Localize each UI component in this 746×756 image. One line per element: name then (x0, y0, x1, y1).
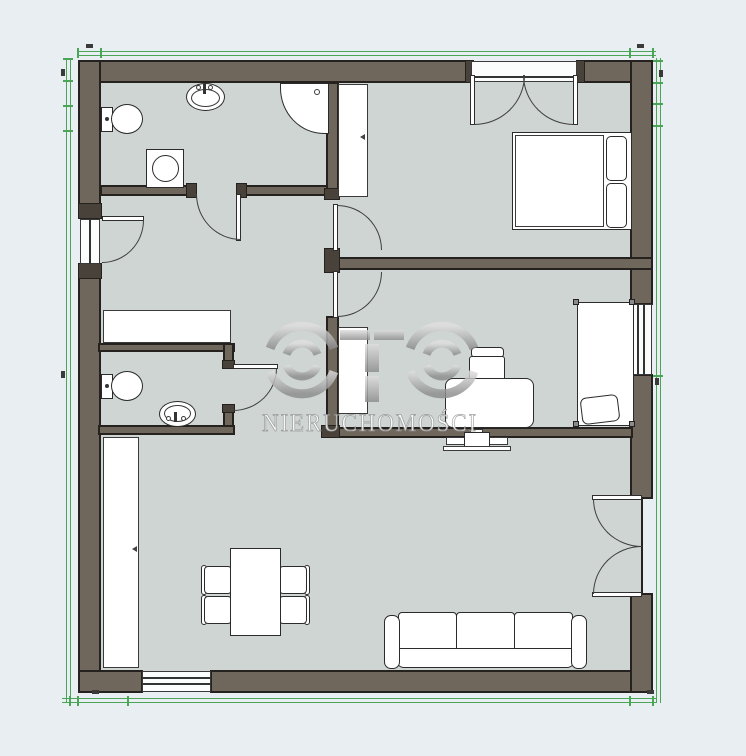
tap-handle (181, 416, 186, 421)
dimension-line-top (78, 51, 656, 56)
dining-chair (279, 596, 307, 624)
window-right (631, 304, 652, 375)
tap-handle (196, 85, 201, 90)
bedroom-wardrobe (338, 84, 368, 197)
bed-post (573, 421, 579, 427)
wall-wc-top (98, 343, 235, 352)
dimension-label-mark (655, 378, 659, 385)
pillow (606, 136, 627, 181)
wall-cap (324, 248, 340, 273)
wall-cap (321, 425, 340, 438)
dimension-tick (63, 105, 73, 107)
dimension-tick (629, 48, 631, 58)
wall-cap (78, 203, 102, 219)
dimension-tick (77, 48, 79, 58)
wall-exterior-bottom-left (78, 670, 143, 693)
wall-bedroom-bottom (326, 257, 653, 270)
window-glazing-line (142, 677, 211, 679)
wall-exterior-left-lower (78, 264, 101, 693)
sofa-backrest (396, 648, 575, 668)
toilet-flush-dot (105, 117, 109, 121)
dimension-tick (63, 130, 73, 132)
bed-post (629, 299, 635, 305)
bed-post (573, 299, 579, 305)
wall-cap (78, 263, 102, 279)
dimension-label-mark (86, 44, 93, 48)
wall-exterior-left-upper (78, 60, 101, 219)
dimension-label-mark (637, 44, 644, 48)
toilet-bowl (111, 104, 143, 134)
wardrobe-arrow (132, 546, 137, 552)
wall-bathroom-bottom-right (237, 185, 330, 196)
dimension-tick (77, 696, 79, 706)
dining-table (230, 548, 281, 636)
entrance-frame-line (89, 219, 91, 264)
dimension-label-mark (61, 371, 65, 378)
window-glazing-line (142, 683, 211, 685)
bed-post (629, 421, 635, 427)
window-bottom (142, 671, 211, 692)
dimension-tick (653, 375, 663, 377)
dimension-label-mark (92, 690, 99, 694)
faucet (203, 84, 206, 94)
dimension-tick (653, 103, 663, 105)
dimension-tick (63, 58, 73, 60)
sofa-armrest (384, 615, 400, 669)
sofa-armrest (571, 615, 587, 669)
single-bed-pillow (579, 394, 620, 425)
dimension-tick (653, 125, 663, 127)
floor-plan-canvas: NIERUCHOMOŚCI (0, 0, 746, 756)
toilet-bowl (111, 371, 143, 401)
ceiling-fan-plate (443, 446, 511, 451)
wall-exterior-top-left (78, 60, 472, 83)
toilet-flush-dot (105, 384, 109, 388)
dining-chair (204, 566, 232, 594)
dining-chair (279, 566, 307, 594)
pillow (606, 183, 627, 228)
dimension-tick (127, 696, 129, 706)
wall-exterior-right-lower (630, 593, 653, 693)
tap-handle (208, 85, 213, 90)
dimension-label-mark (647, 690, 654, 694)
dimension-line-bottom (62, 698, 656, 703)
wall-exterior-bottom-right (210, 670, 653, 693)
desk (445, 378, 534, 428)
ceiling-fan-blade (487, 437, 508, 445)
dimension-tick (69, 696, 71, 706)
window-glazing-line (637, 304, 639, 375)
double-bed-mattress (515, 135, 604, 227)
dimension-tick (652, 48, 654, 58)
wall-wc-bottom (98, 425, 235, 435)
dimension-tick (652, 696, 654, 706)
window-glazing-line (643, 304, 645, 375)
hall-closet (103, 310, 231, 343)
dimension-label-mark (659, 70, 663, 77)
dimension-line-left (66, 58, 71, 703)
dimension-tick (63, 80, 73, 82)
dimension-tick (653, 82, 663, 84)
dimension-tick (653, 60, 663, 62)
office-wardrobe (338, 327, 368, 414)
dimension-tick (100, 48, 102, 58)
dining-chair (204, 596, 232, 624)
tap-handle (166, 416, 171, 421)
tall-wardrobe (103, 437, 139, 668)
dimension-tick (629, 696, 631, 706)
wardrobe-arrow (360, 134, 365, 140)
faucet (174, 412, 177, 422)
shower-drain (314, 89, 320, 95)
washing-machine-drum (152, 155, 179, 182)
dimension-label-mark (61, 69, 65, 76)
